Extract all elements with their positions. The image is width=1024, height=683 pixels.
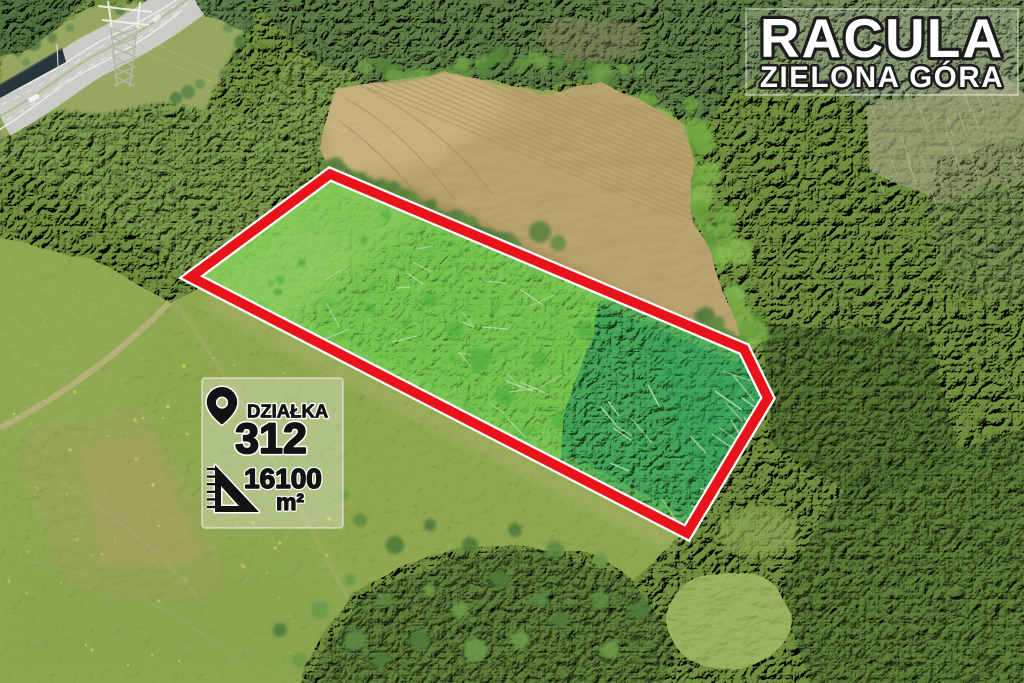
svg-text:312: 312 bbox=[235, 415, 307, 463]
svg-text:ZIELONA GÓRA: ZIELONA GÓRA bbox=[760, 60, 1004, 94]
svg-text:m²: m² bbox=[276, 489, 304, 515]
svg-text:RACULA: RACULA bbox=[760, 7, 1004, 69]
